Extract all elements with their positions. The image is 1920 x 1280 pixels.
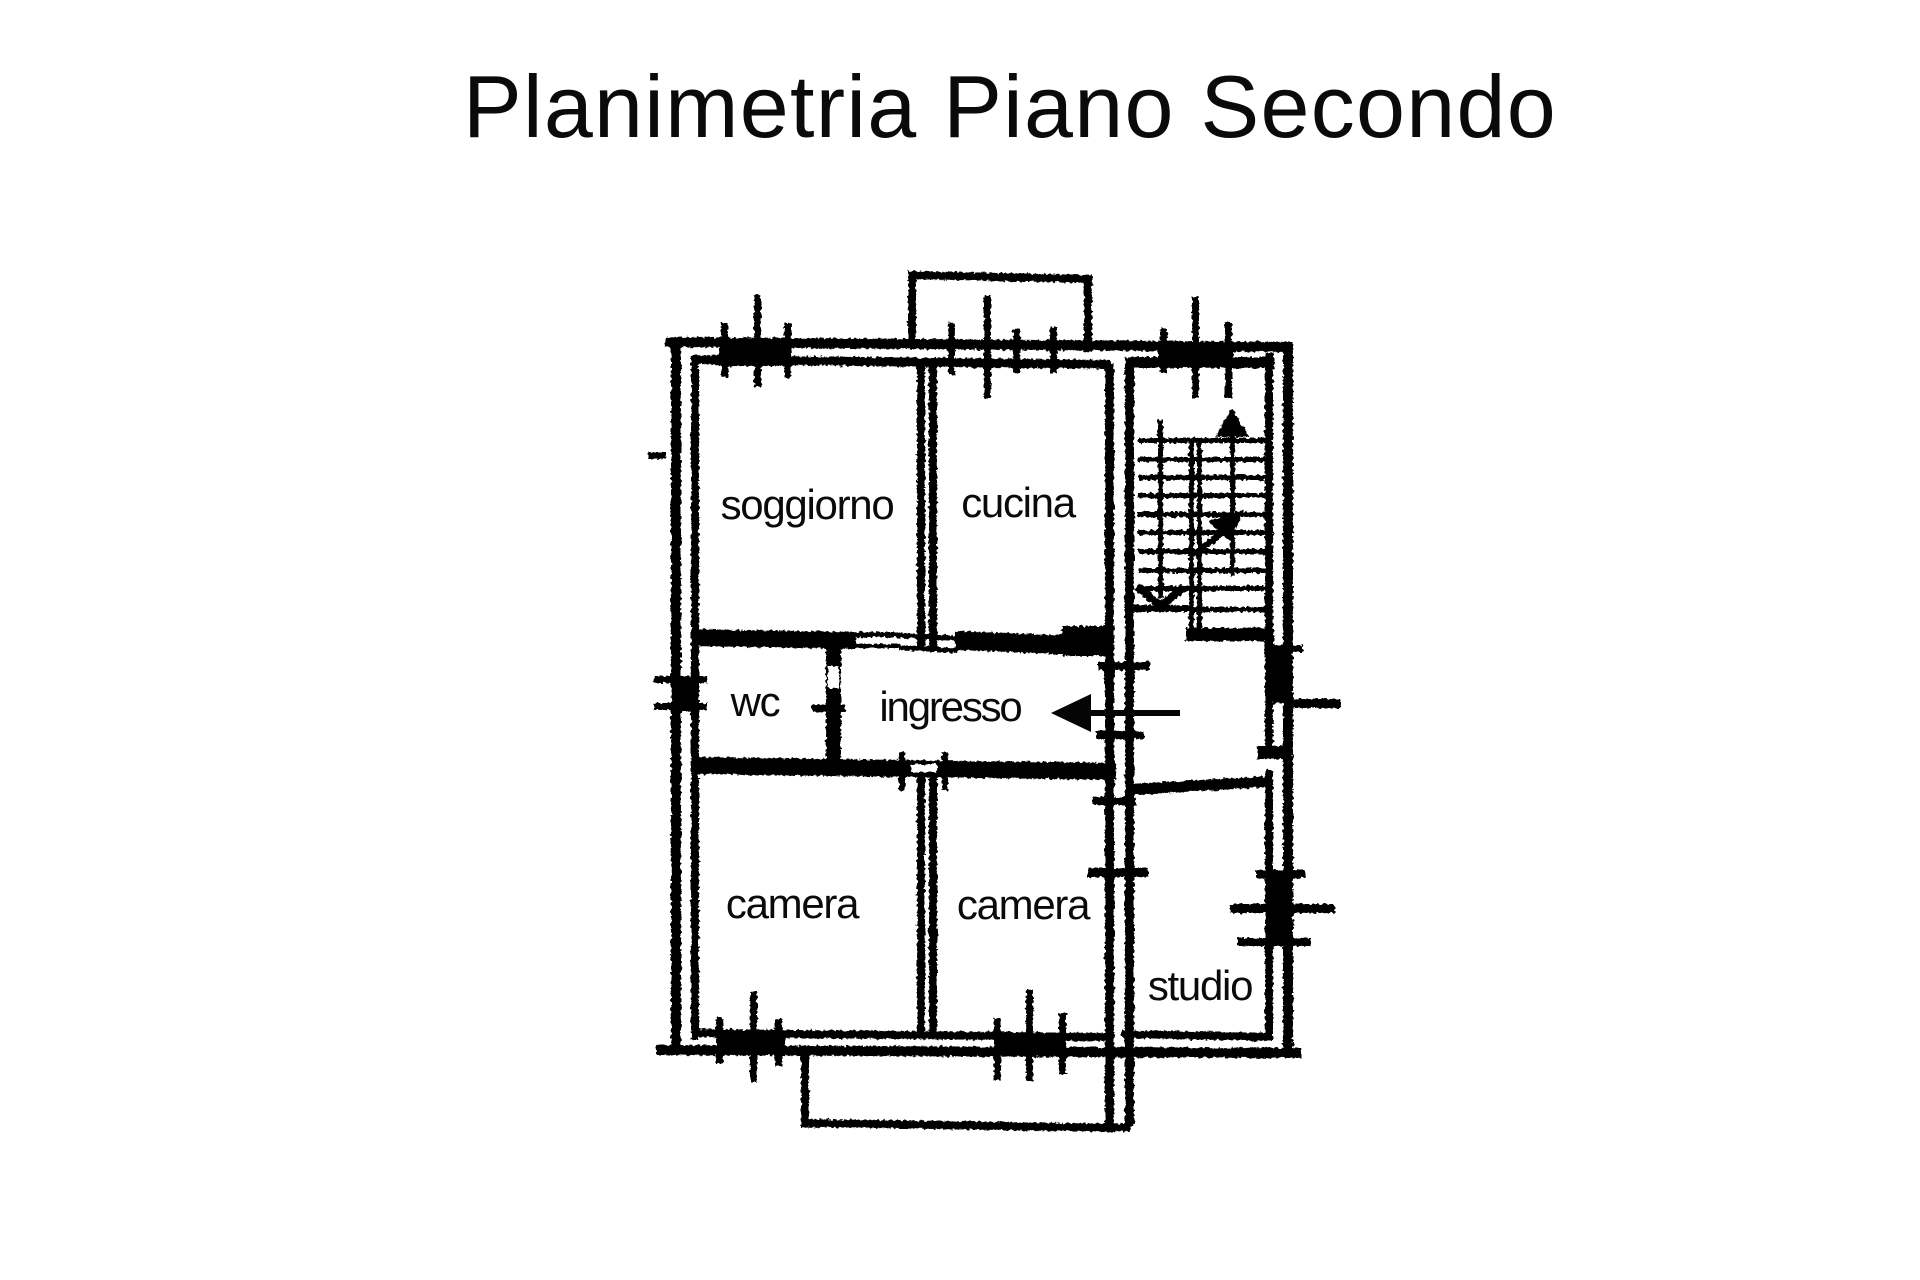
svg-text:cucina: cucina xyxy=(961,479,1077,526)
svg-text:camera: camera xyxy=(957,881,1091,928)
svg-text:studio: studio xyxy=(1148,962,1252,1009)
svg-text:wc: wc xyxy=(730,678,780,725)
svg-text:Planimetria Piano Secondo: Planimetria Piano Secondo xyxy=(463,57,1557,156)
svg-text:ingresso: ingresso xyxy=(879,683,1021,730)
svg-text:soggiorno: soggiorno xyxy=(721,481,894,528)
svg-text:camera: camera xyxy=(726,880,860,927)
